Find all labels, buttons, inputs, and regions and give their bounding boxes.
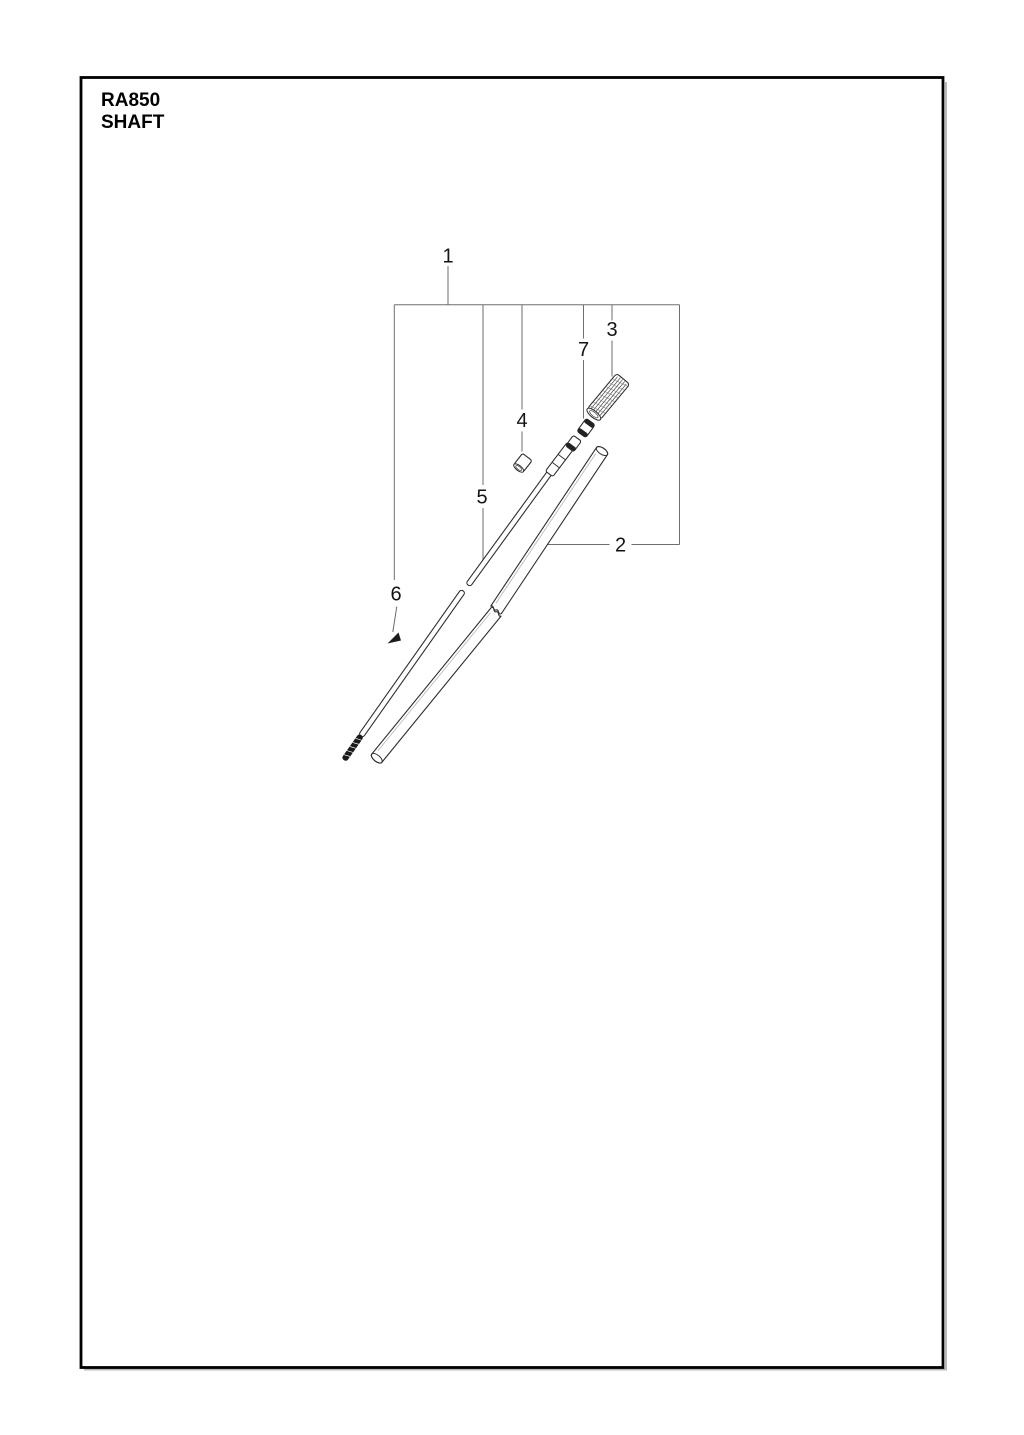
- page-title-model: RA850: [101, 90, 160, 111]
- page: RA850 SHAFT 1 2 3: [0, 0, 1024, 1435]
- callout-label-6: 6: [390, 584, 401, 606]
- page-title-section: SHAFT: [101, 112, 165, 133]
- callout-label-7: 7: [578, 339, 589, 361]
- callout-label-3: 3: [606, 319, 617, 341]
- callout-label-1: 1: [442, 246, 453, 268]
- callout-label-5: 5: [476, 487, 487, 509]
- callout-label-4: 4: [516, 410, 527, 432]
- page-border: [81, 78, 943, 1368]
- callout-label-2: 2: [615, 535, 626, 557]
